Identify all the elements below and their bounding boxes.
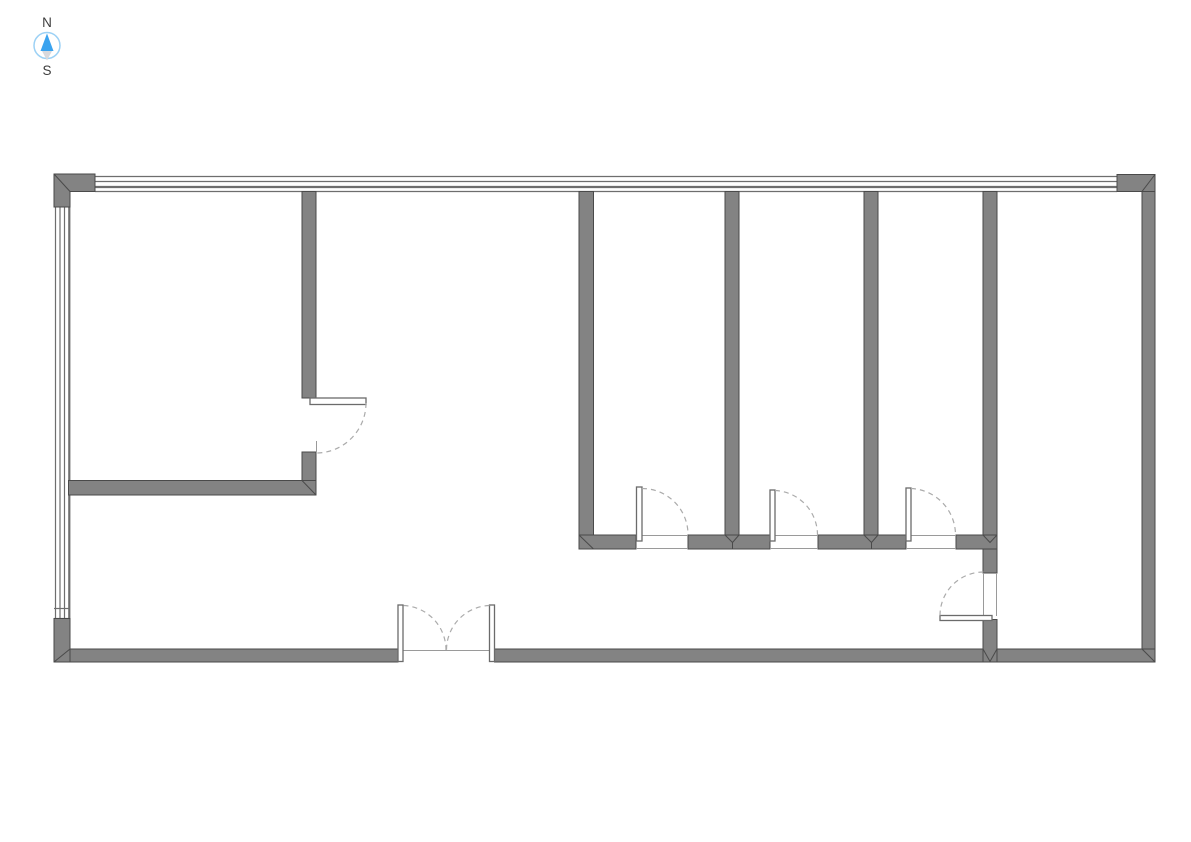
north-window <box>95 177 1117 192</box>
door-leaf <box>770 490 775 541</box>
south-wall-east-segment <box>495 649 1156 662</box>
corridor-wall-segment <box>579 535 636 549</box>
door-leaf-left <box>398 605 403 662</box>
door-swing-arc <box>940 572 984 616</box>
partition-room-3-west <box>864 192 878 550</box>
interior-walls <box>69 192 998 663</box>
door-swing-arc-left <box>404 606 447 651</box>
west-window <box>54 207 70 619</box>
south-arrow-icon <box>42 51 52 61</box>
door-swing-arc <box>775 491 818 536</box>
doors <box>310 398 997 662</box>
partition-east-corridor-lower <box>983 620 997 663</box>
double-door-entrance <box>398 605 495 662</box>
door-leaf-right <box>490 605 495 662</box>
door-leaf <box>637 487 643 541</box>
door-room-1 <box>636 487 688 549</box>
compass-north-label: N <box>42 15 52 30</box>
north-arrow-icon <box>41 34 54 52</box>
corridor-wall-segment <box>818 535 906 549</box>
door-leaf <box>940 616 992 621</box>
partition-west-room-horizontal <box>69 481 317 496</box>
door-room-3 <box>906 488 956 549</box>
door-swing-arc-right <box>446 606 489 651</box>
door-east-corridor <box>940 572 997 621</box>
door-swing-arc <box>911 489 956 536</box>
door-swing-arc <box>316 403 366 453</box>
door-leaf <box>906 488 911 541</box>
partition-west-room-upper <box>302 192 316 399</box>
east-wall <box>1142 192 1155 663</box>
door-swing-arc <box>642 489 688 535</box>
corridor-wall-segment <box>688 535 770 549</box>
partition-room-2-west <box>725 192 739 550</box>
door-room-2 <box>770 490 818 549</box>
door-leaf <box>310 398 366 405</box>
partition-east-corridor-upper <box>983 192 997 574</box>
floor-plan-canvas: N S <box>0 0 1191 842</box>
compass-south-label: S <box>42 63 51 78</box>
door-west-room <box>310 398 366 453</box>
partition-room-1-west <box>579 192 594 550</box>
compass: N S <box>34 15 60 78</box>
south-wall-west-segment <box>54 649 398 662</box>
corner-column-northeast <box>1117 175 1155 192</box>
corner-column-northwest <box>54 174 95 207</box>
